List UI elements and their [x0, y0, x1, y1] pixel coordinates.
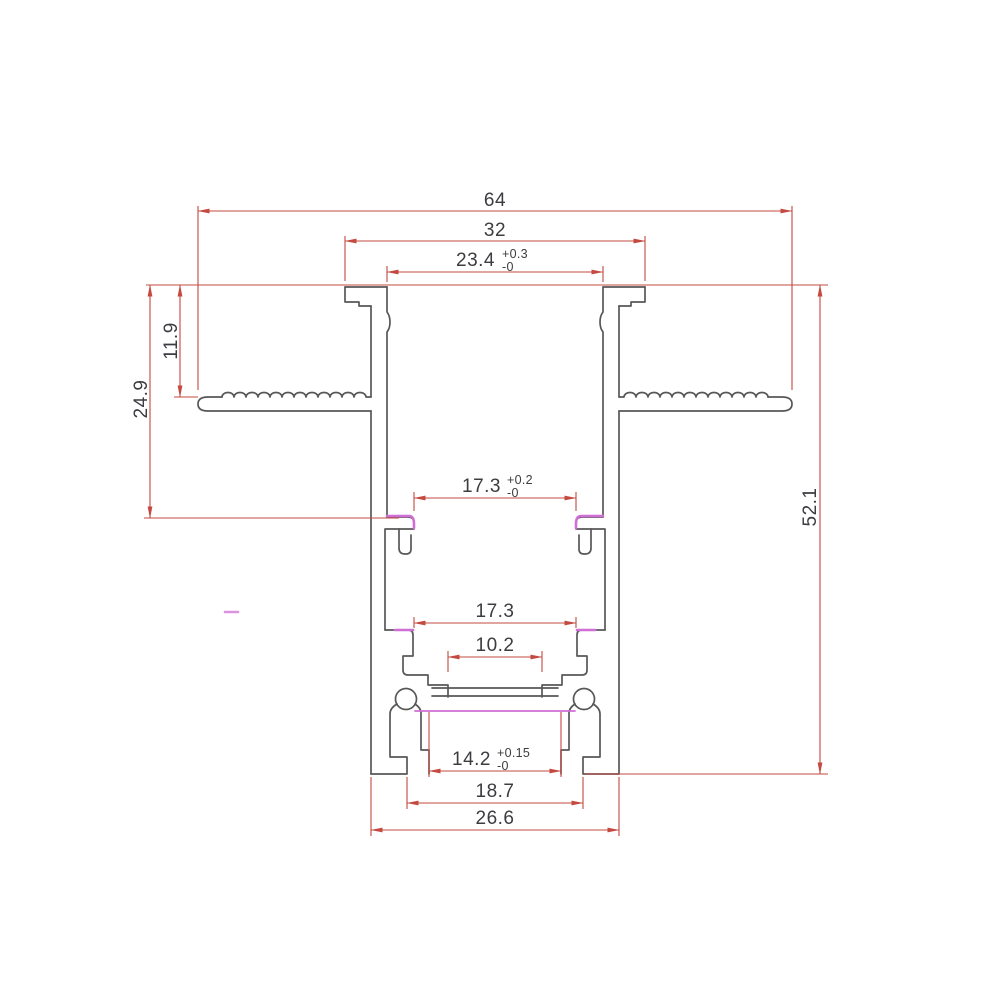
wing-right-serration [619, 393, 768, 398]
wing-left-tip-and-bottom [198, 397, 371, 411]
lower-lip-left [385, 630, 448, 697]
screw-boss-left-circle [396, 689, 417, 710]
highlight-marks [225, 516, 603, 711]
screw-boss-right-circle [574, 689, 595, 710]
screw-boss-left-body [415, 704, 429, 774]
dim-hook-span: 32 [484, 220, 506, 241]
dim-top-opening: 23.4 +0.3 -0 [456, 245, 532, 274]
dimension-lines [150, 211, 820, 830]
screw-boss-right-body [561, 704, 575, 774]
wing-right-tip-and-bottom [619, 397, 792, 411]
foot-left [371, 704, 407, 774]
dim-wing-depth: 11.9 [161, 322, 182, 360]
dim-shelf-opening: 10.2 [476, 635, 515, 656]
dim-overall-height: 52.1 [800, 488, 821, 527]
dim-ledge-depth: 24.9 [131, 380, 152, 419]
inner-wall-left [387, 287, 390, 517]
profile-cross-section-drawing: 64 32 23.4 +0.3 -0 17.3 +0.2 -0 17.3 10.… [0, 0, 1000, 1000]
top-hook-left [345, 287, 371, 306]
dim-lower-opening: 17.3 [476, 601, 515, 622]
top-hook-right [619, 287, 645, 306]
ledge-hook-left [399, 529, 411, 554]
technical-drawing-page: 64 32 23.4 +0.3 -0 17.3 +0.2 -0 17.3 10.… [0, 0, 1000, 1000]
dim-ledge-opening: 17.3 +0.2 -0 [462, 471, 537, 500]
foot-right [583, 704, 619, 774]
profile-outline [198, 287, 792, 774]
dimension-labels: 64 32 23.4 +0.3 -0 17.3 +0.2 -0 17.3 10.… [131, 190, 821, 829]
dim-top-width: 64 [484, 190, 506, 211]
led-platform [432, 688, 558, 696]
dim-base-step-width: 18.7 [476, 781, 515, 802]
inner-wall-right [600, 287, 603, 517]
dimension-extension-lines [144, 206, 828, 836]
wing-left-serration [222, 393, 371, 398]
dim-base-width: 26.6 [476, 808, 515, 829]
ledge-hook-right [579, 529, 591, 554]
dim-diffuser-opening: 14.2 +0.15 -0 [452, 744, 535, 773]
lower-lip-right [542, 630, 605, 697]
